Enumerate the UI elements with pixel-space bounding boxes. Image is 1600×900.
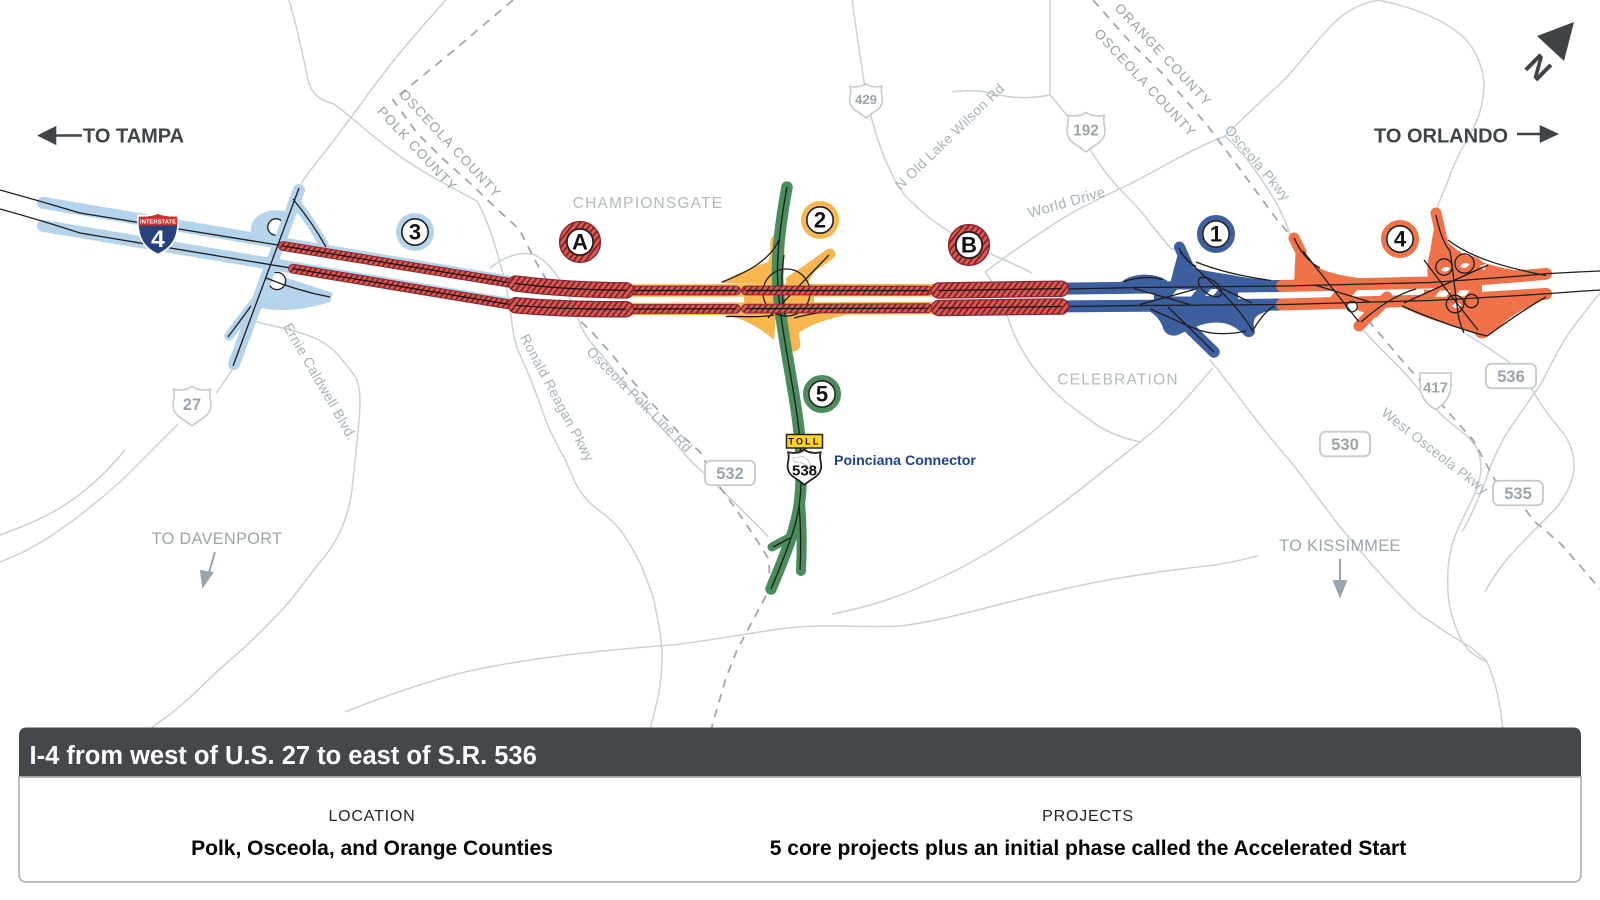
svg-text:2: 2: [814, 208, 826, 233]
svg-text:4: 4: [1394, 227, 1407, 252]
svg-text:536: 536: [1497, 368, 1525, 386]
svg-text:532: 532: [716, 465, 744, 483]
svg-text:Polk, Osceola, and Orange Coun: Polk, Osceola, and Orange Counties: [191, 837, 553, 860]
svg-text:CHAMPIONSGATE: CHAMPIONSGATE: [573, 195, 724, 212]
svg-text:B: B: [961, 233, 977, 258]
svg-text:5: 5: [816, 382, 828, 407]
svg-text:INTERSTATE: INTERSTATE: [140, 219, 176, 225]
svg-text:TO KISSIMMEE: TO KISSIMMEE: [1279, 537, 1400, 555]
svg-text:PROJECTS: PROJECTS: [1042, 808, 1134, 825]
svg-text:LOCATION: LOCATION: [328, 808, 415, 825]
svg-text:429: 429: [855, 92, 877, 107]
svg-text:4: 4: [151, 226, 165, 253]
svg-text:CELEBRATION: CELEBRATION: [1057, 372, 1178, 389]
svg-text:3: 3: [409, 220, 421, 245]
svg-text:TOLL: TOLL: [788, 437, 820, 447]
svg-text:535: 535: [1504, 485, 1532, 503]
svg-text:538: 538: [792, 463, 817, 480]
svg-text:192: 192: [1073, 123, 1099, 140]
svg-text:A: A: [572, 230, 588, 255]
svg-text:Poinciana Connector: Poinciana Connector: [834, 453, 976, 469]
svg-text:1: 1: [1210, 222, 1222, 247]
svg-text:5 core projects plus an initia: 5 core projects plus an initial phase ca…: [770, 837, 1406, 860]
svg-text:TO DAVENPORT: TO DAVENPORT: [152, 530, 283, 548]
svg-text:TO TAMPA: TO TAMPA: [83, 126, 184, 148]
svg-text:530: 530: [1331, 436, 1359, 454]
svg-text:TO ORLANDO: TO ORLANDO: [1374, 126, 1508, 148]
svg-text:27: 27: [183, 396, 201, 414]
svg-text:417: 417: [1423, 380, 1448, 397]
svg-text:I-4 from west of U.S. 27 to ea: I-4 from west of U.S. 27 to east of S.R.…: [30, 742, 537, 770]
